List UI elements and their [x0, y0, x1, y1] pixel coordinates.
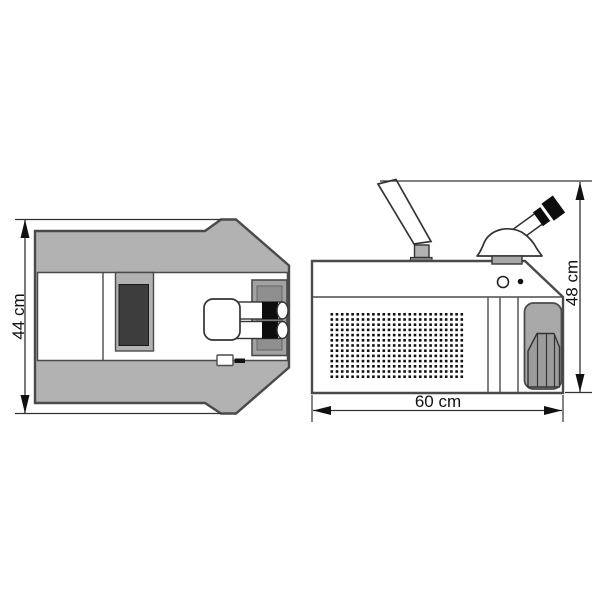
eyepiece-band-upper: [262, 302, 278, 319]
microscope-collar: [492, 256, 522, 264]
eyepiece-cap-lower: [277, 322, 288, 339]
center-dark-panel: [119, 285, 149, 346]
power-button: [498, 277, 509, 288]
dim-60-arrow-left: [313, 406, 331, 415]
dim-48-arrow-up: [576, 182, 585, 200]
dim-44-label: 44 cm: [9, 293, 28, 339]
indicator-dot: [518, 279, 524, 285]
dim-44-arrow-down: [21, 395, 30, 414]
latch-tab: [217, 355, 233, 366]
joystick-lever: [378, 180, 431, 245]
eyepiece-cap-upper: [277, 302, 288, 319]
dimension-60: 60 cm: [312, 392, 563, 422]
top-view: 44 cm: [9, 220, 289, 414]
indicator-mark: [235, 359, 246, 364]
product-dimension-diagram: 44 cm: [0, 0, 600, 600]
dim-44-arrow-up: [21, 220, 30, 239]
dim-60-label: 60 cm: [415, 392, 461, 411]
side-view: 48 cm 60 cm: [312, 180, 592, 423]
microscope-head-top: [204, 299, 240, 340]
lever-base: [415, 245, 430, 258]
microscope-body: [477, 229, 542, 256]
dim-48-label: 48 cm: [563, 260, 582, 306]
dim-48-arrow-down: [576, 374, 585, 392]
diagram-svg: 44 cm: [0, 0, 600, 600]
dim-60-arrow-right: [544, 406, 562, 415]
eyepiece-band-lower: [262, 322, 278, 339]
